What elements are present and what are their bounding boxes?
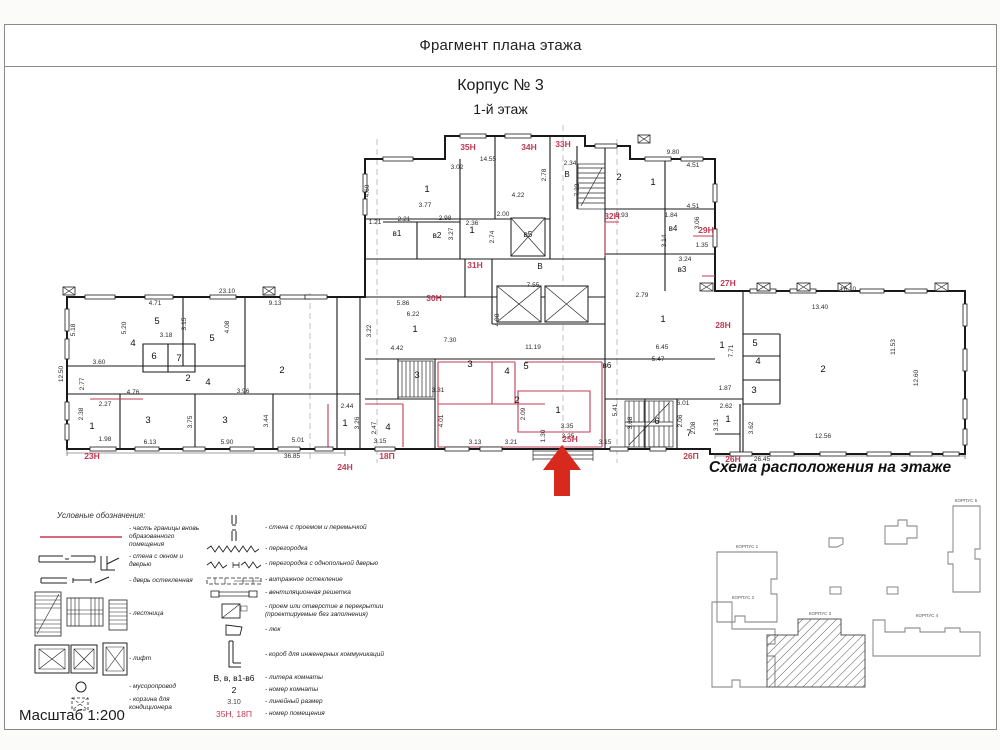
elevator-icon bbox=[33, 641, 129, 677]
dimension-label: 23.10 bbox=[219, 288, 236, 295]
dimension-label: 7.22 bbox=[574, 183, 581, 196]
premise-number-label: 29Н bbox=[698, 225, 714, 235]
room-number-label: 6 bbox=[151, 351, 156, 362]
premise-number-label: 32Н bbox=[604, 211, 620, 221]
stairs-icon bbox=[33, 590, 129, 638]
premise-number-label: 35Н bbox=[460, 142, 476, 152]
room-number-label: 2 bbox=[514, 395, 519, 406]
partition-door-icon bbox=[203, 560, 265, 570]
room-number-label: 3 bbox=[222, 415, 227, 426]
legend-item-vent-grille: вентиляционная решетка bbox=[203, 587, 385, 600]
dimension-label: 2.74 bbox=[489, 230, 496, 243]
dimension-label: 2.77 bbox=[79, 377, 86, 390]
dimension-label: 2.27 bbox=[99, 401, 112, 408]
dimension-label: 4.98 bbox=[494, 313, 501, 326]
room-number-label: 2 bbox=[185, 373, 190, 384]
partition-icon bbox=[203, 544, 265, 554]
dimension-label: 1.98 bbox=[99, 436, 112, 443]
dimension-label: 3.15 bbox=[599, 439, 612, 446]
legend-item-room-number: 2 номер комнаты bbox=[203, 684, 385, 696]
dimension-label: 12.50 bbox=[58, 365, 65, 382]
dimension-label: 1.21 bbox=[369, 219, 382, 226]
dimension-label: 3.15 bbox=[374, 438, 387, 445]
room-number-label: 5 bbox=[154, 316, 159, 327]
room-letter-label: В bbox=[537, 262, 542, 271]
dimension-label: 5.47 bbox=[652, 356, 665, 363]
premise-number-label: 27Н bbox=[720, 278, 736, 288]
scheme-building-3-label: КОРПУС 3 bbox=[809, 611, 832, 616]
legend-item-premise-number: 35Н, 18П номер помещения bbox=[203, 708, 385, 720]
room-number-label: 4 bbox=[504, 366, 509, 377]
legend-item-stairs: лестница bbox=[33, 589, 203, 639]
legend-item-duct: короб для инженерных коммуникаций bbox=[203, 638, 385, 672]
dimension-label: 12.60 bbox=[913, 369, 920, 386]
scheme-building-1-label: КОРПУС 1 bbox=[736, 544, 759, 549]
dimension-label: 2.62 bbox=[720, 403, 733, 410]
dimension-label: 2.38 bbox=[78, 407, 85, 420]
dimension-label: 3.02 bbox=[451, 164, 464, 171]
legend-item-hatch: люк bbox=[203, 622, 385, 638]
legend-item-room-letter: В, в, в1-в6 литера комнаты bbox=[203, 672, 385, 684]
dimension-label: 2.79 bbox=[636, 292, 649, 299]
legend-column-1: часть границы вновь образованного помеще… bbox=[33, 525, 203, 713]
legend-column-2: стена с проемом и перемычкой перегородка… bbox=[203, 513, 385, 720]
room-number-label: 1 bbox=[725, 414, 730, 425]
dimension-label: 11.19 bbox=[525, 344, 541, 351]
scale-note: Масштаб 1:200 bbox=[19, 707, 125, 724]
dimension-label: 5.86 bbox=[397, 300, 410, 307]
room-number-label: 3 bbox=[751, 385, 756, 396]
room-number-label: 3 bbox=[145, 415, 150, 426]
dimension-label: 6.22 bbox=[407, 311, 420, 318]
dimension-label: 36.85 bbox=[284, 453, 301, 460]
room-letter-label: в5 bbox=[524, 230, 533, 239]
drawing-sheet: Фрагмент плана этажа Корпус № 3 1-й этаж bbox=[4, 24, 997, 730]
dimension-label: 3.15 bbox=[181, 317, 188, 330]
hatch-icon bbox=[203, 622, 265, 638]
dimension-label: 3.22 bbox=[366, 324, 373, 337]
premise-number-label: 24Н bbox=[337, 462, 353, 472]
premise-number-label: 30Н bbox=[426, 293, 442, 303]
dimension-label: 2.09 bbox=[520, 407, 527, 420]
dimension-label: 2.78 bbox=[541, 168, 548, 181]
dimension-label: 3.21 bbox=[505, 439, 518, 446]
dimension-label: 4.60 bbox=[364, 184, 371, 197]
scheme-building-2-label: КОРПУС 2 bbox=[732, 595, 755, 600]
room-letter-label: в6 bbox=[603, 361, 612, 370]
dimension-label: 3.75 bbox=[187, 415, 194, 428]
dimension-label: 3.31 bbox=[713, 418, 720, 431]
dimension-label: 5.18 bbox=[70, 323, 77, 336]
dimension-label: 7.55 bbox=[527, 282, 540, 289]
glazed-door-icon bbox=[33, 574, 129, 588]
room-letter-labels: ВВв1в2в3в4в5в6 bbox=[393, 170, 687, 370]
dimension-label: 1.30 bbox=[540, 429, 547, 442]
duct-icon bbox=[203, 639, 265, 671]
room-number-label: 5 bbox=[523, 361, 528, 372]
dimension-label: 9.80 bbox=[667, 149, 680, 156]
legend-item-wall-window-door: стена с окном и дверью bbox=[33, 549, 203, 573]
dimension-label: 4.22 bbox=[512, 192, 525, 199]
legend-item-partition-door: перегородка с однопольной дверью bbox=[203, 555, 385, 574]
location-arrow bbox=[543, 445, 581, 496]
dimension-label: 9.13 bbox=[269, 300, 282, 307]
room-number-label: 1 bbox=[719, 340, 724, 351]
legend-item-wall-opening: стена с проемом и перемычкой bbox=[203, 513, 385, 543]
dimension-label: 2.06 bbox=[677, 414, 684, 427]
dimension-label: 3.77 bbox=[419, 202, 432, 209]
dimension-label: 12.56 bbox=[815, 433, 832, 440]
premise-number-label: 18П bbox=[379, 451, 395, 461]
dimension-label: 4.01 bbox=[438, 414, 445, 427]
room-number-label: 4 bbox=[755, 356, 760, 367]
room-number-label: 1 bbox=[424, 184, 429, 195]
dimension-label: 14.55 bbox=[480, 156, 497, 163]
scheme-title: Схема расположения на этаже bbox=[665, 459, 995, 477]
legend-item-chute: мусоропровод bbox=[33, 679, 203, 695]
legend-item-slab-opening: проем или отверстие в перекрытии (проект… bbox=[203, 600, 385, 622]
site-scheme: КОРПУС 1 КОРПУС 2 КОРПУС 3 КОРПУС 4 КОРП… bbox=[712, 498, 980, 687]
scheme-building-5-label: КОРПУС 5 bbox=[955, 498, 978, 503]
dimension-label: 3.18 bbox=[160, 332, 173, 339]
room-letter-label: В bbox=[564, 170, 569, 179]
dimension-label: 13.40 bbox=[812, 304, 829, 311]
premise-boundary-lines bbox=[90, 222, 715, 447]
room-number-label: 1 bbox=[469, 225, 474, 236]
premise-number-label: 25Н bbox=[562, 434, 578, 444]
dimension-label: 3.31 bbox=[432, 387, 445, 394]
room-number-label: 1 bbox=[555, 405, 560, 416]
dimension-label: 1.87 bbox=[719, 385, 732, 392]
room-number-example: 2 bbox=[203, 685, 265, 695]
room-number-label: 5 bbox=[752, 338, 757, 349]
legend-item-partition: перегородка bbox=[203, 543, 385, 555]
room-number-label: 4 bbox=[385, 422, 390, 433]
dimension-label: 4.51 bbox=[687, 162, 700, 169]
legend-item-elevator: лифт bbox=[33, 639, 203, 679]
room-number-label: 7 bbox=[686, 428, 691, 439]
dimension-label: 2.00 bbox=[497, 211, 510, 218]
dimension-label: 3.68 bbox=[627, 416, 634, 429]
dimension-label: 3.27 bbox=[448, 227, 455, 240]
dimension-label: 4.71 bbox=[149, 300, 162, 307]
vitrage-icon bbox=[203, 575, 265, 587]
dimension-label: 1.35 bbox=[696, 242, 709, 249]
premise-number-label: 34Н bbox=[521, 142, 537, 152]
room-number-label: 7 bbox=[176, 353, 181, 364]
linear-dim-example: 3.10 bbox=[203, 699, 265, 706]
room-letter-label: в3 bbox=[678, 265, 687, 274]
chute-icon bbox=[33, 680, 129, 694]
room-number-label: 6 bbox=[654, 416, 659, 427]
room-number-label: 3 bbox=[467, 359, 472, 370]
dimension-label: 1.84 bbox=[665, 212, 678, 219]
dimension-label: 6.13 bbox=[144, 439, 157, 446]
premise-number-example: 35Н, 18П bbox=[203, 709, 265, 719]
slab-opening-icon bbox=[203, 601, 265, 621]
room-letter-example: В, в, в1-в6 bbox=[203, 673, 265, 683]
room-letter-label: в4 bbox=[669, 224, 678, 233]
legend-item-boundary: часть границы вновь образованного помеще… bbox=[33, 525, 203, 549]
room-number-label: 1 bbox=[412, 324, 417, 335]
legend-item-linear-dim: 3.10 линейный размер bbox=[203, 696, 385, 708]
dimension-label: 3.26 bbox=[354, 416, 361, 429]
dimension-label: 6.45 bbox=[656, 344, 669, 351]
premise-number-label: 23Н bbox=[84, 451, 100, 461]
dimension-label: 11.53 bbox=[890, 339, 897, 355]
dimension-label: 16.10 bbox=[840, 286, 857, 293]
dimension-label: 2.98 bbox=[439, 215, 452, 222]
dimension-label: 2.34 bbox=[564, 160, 577, 167]
room-number-label: 1 bbox=[650, 177, 655, 188]
dimension-label: 4.51 bbox=[687, 203, 700, 210]
room-number-label: 1 bbox=[89, 421, 94, 432]
room-number-label: 2 bbox=[820, 364, 825, 375]
dimension-label: 3.24 bbox=[679, 256, 692, 263]
dimension-label: 3.35 bbox=[561, 423, 574, 430]
dimension-label: 7.71 bbox=[728, 344, 735, 357]
room-letter-label: в1 bbox=[393, 229, 402, 238]
room-number-label: 2 bbox=[616, 172, 621, 183]
dimension-label: 5.90 bbox=[221, 439, 234, 446]
dimension-label: 3.13 bbox=[469, 439, 482, 446]
dimension-label: 5.20 bbox=[121, 321, 128, 334]
dimension-label: 7.30 bbox=[444, 337, 457, 344]
room-number-label: 4 bbox=[205, 377, 210, 388]
wall-opening-icon bbox=[203, 514, 265, 542]
legend-item-vitrage: витражное остекление bbox=[203, 574, 385, 587]
dimension-label: 3.62 bbox=[748, 421, 755, 434]
legend-item-glazed-door: дверь остекленная bbox=[33, 573, 203, 589]
dimension-label: 5.01 bbox=[292, 437, 305, 444]
room-number-label: 4 bbox=[130, 338, 135, 349]
dimension-label: 4.42 bbox=[391, 345, 404, 352]
dimension-label: 2.44 bbox=[341, 403, 354, 410]
dimension-label: 5.41 bbox=[612, 403, 619, 416]
dimension-label: 2.47 bbox=[371, 421, 378, 434]
dimension-label: 3.44 bbox=[263, 414, 270, 427]
room-number-label: 1 bbox=[342, 418, 347, 429]
room-number-label: 1 bbox=[660, 314, 665, 325]
premise-number-label: 33Н bbox=[555, 139, 571, 149]
dimension-label: 2.21 bbox=[398, 216, 411, 223]
dimension-label: 4.76 bbox=[127, 389, 140, 396]
dimension-labels: 14.559.803.022.344.224.514.513.772.982.2… bbox=[58, 149, 920, 463]
room-number-label: 5 bbox=[209, 333, 214, 344]
scheme-building-4-label: КОРПУС 4 bbox=[916, 613, 939, 618]
room-letter-label: в2 bbox=[433, 231, 442, 240]
premise-number-label: 31Н bbox=[467, 260, 483, 270]
vent-grille-icon bbox=[203, 589, 265, 599]
boundary-line-icon bbox=[33, 533, 129, 541]
dimension-label: 3.96 bbox=[237, 388, 250, 395]
dimension-label: 3.14 bbox=[661, 234, 668, 247]
dimension-label: 4.08 bbox=[224, 320, 231, 333]
room-number-label: 3 bbox=[414, 370, 419, 381]
premise-number-label: 28Н bbox=[715, 320, 731, 330]
legend: Условные обозначения: часть границы внов… bbox=[33, 511, 383, 524]
wall-window-door-icon bbox=[33, 550, 129, 572]
dimension-label: 3.60 bbox=[93, 359, 106, 366]
dimension-label: 6.01 bbox=[677, 400, 690, 407]
room-number-label: 2 bbox=[279, 365, 284, 376]
